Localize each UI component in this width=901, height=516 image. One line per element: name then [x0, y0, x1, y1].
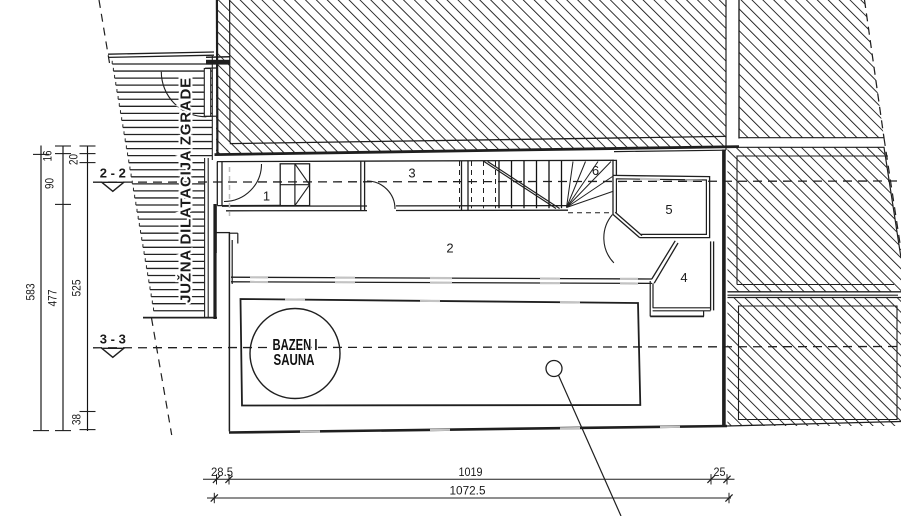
svg-text:3: 3	[408, 166, 415, 181]
svg-text:1: 1	[263, 189, 270, 204]
svg-text:1072.5: 1072.5	[450, 486, 486, 498]
svg-text:5: 5	[665, 202, 672, 217]
svg-text:583: 583	[26, 284, 38, 301]
svg-text:SAUNA: SAUNA	[274, 352, 315, 369]
svg-text:25: 25	[714, 467, 726, 479]
svg-text:20: 20	[69, 154, 81, 165]
svg-text:JUŽNA DILATACIJA ZGRADE: JUŽNA DILATACIJA ZGRADE	[177, 77, 195, 303]
svg-text:90: 90	[45, 178, 57, 189]
svg-text:2 - 2: 2 - 2	[100, 166, 126, 181]
svg-text:28.5: 28.5	[211, 467, 233, 479]
svg-text:477: 477	[48, 290, 60, 307]
svg-text:38: 38	[72, 414, 84, 425]
svg-text:1019: 1019	[459, 467, 483, 479]
svg-text:2: 2	[446, 241, 453, 256]
svg-text:4: 4	[680, 270, 687, 285]
svg-text:3 - 3: 3 - 3	[100, 332, 126, 347]
svg-text:16: 16	[43, 151, 55, 162]
svg-text:525: 525	[72, 280, 84, 297]
svg-text:6: 6	[592, 163, 599, 178]
